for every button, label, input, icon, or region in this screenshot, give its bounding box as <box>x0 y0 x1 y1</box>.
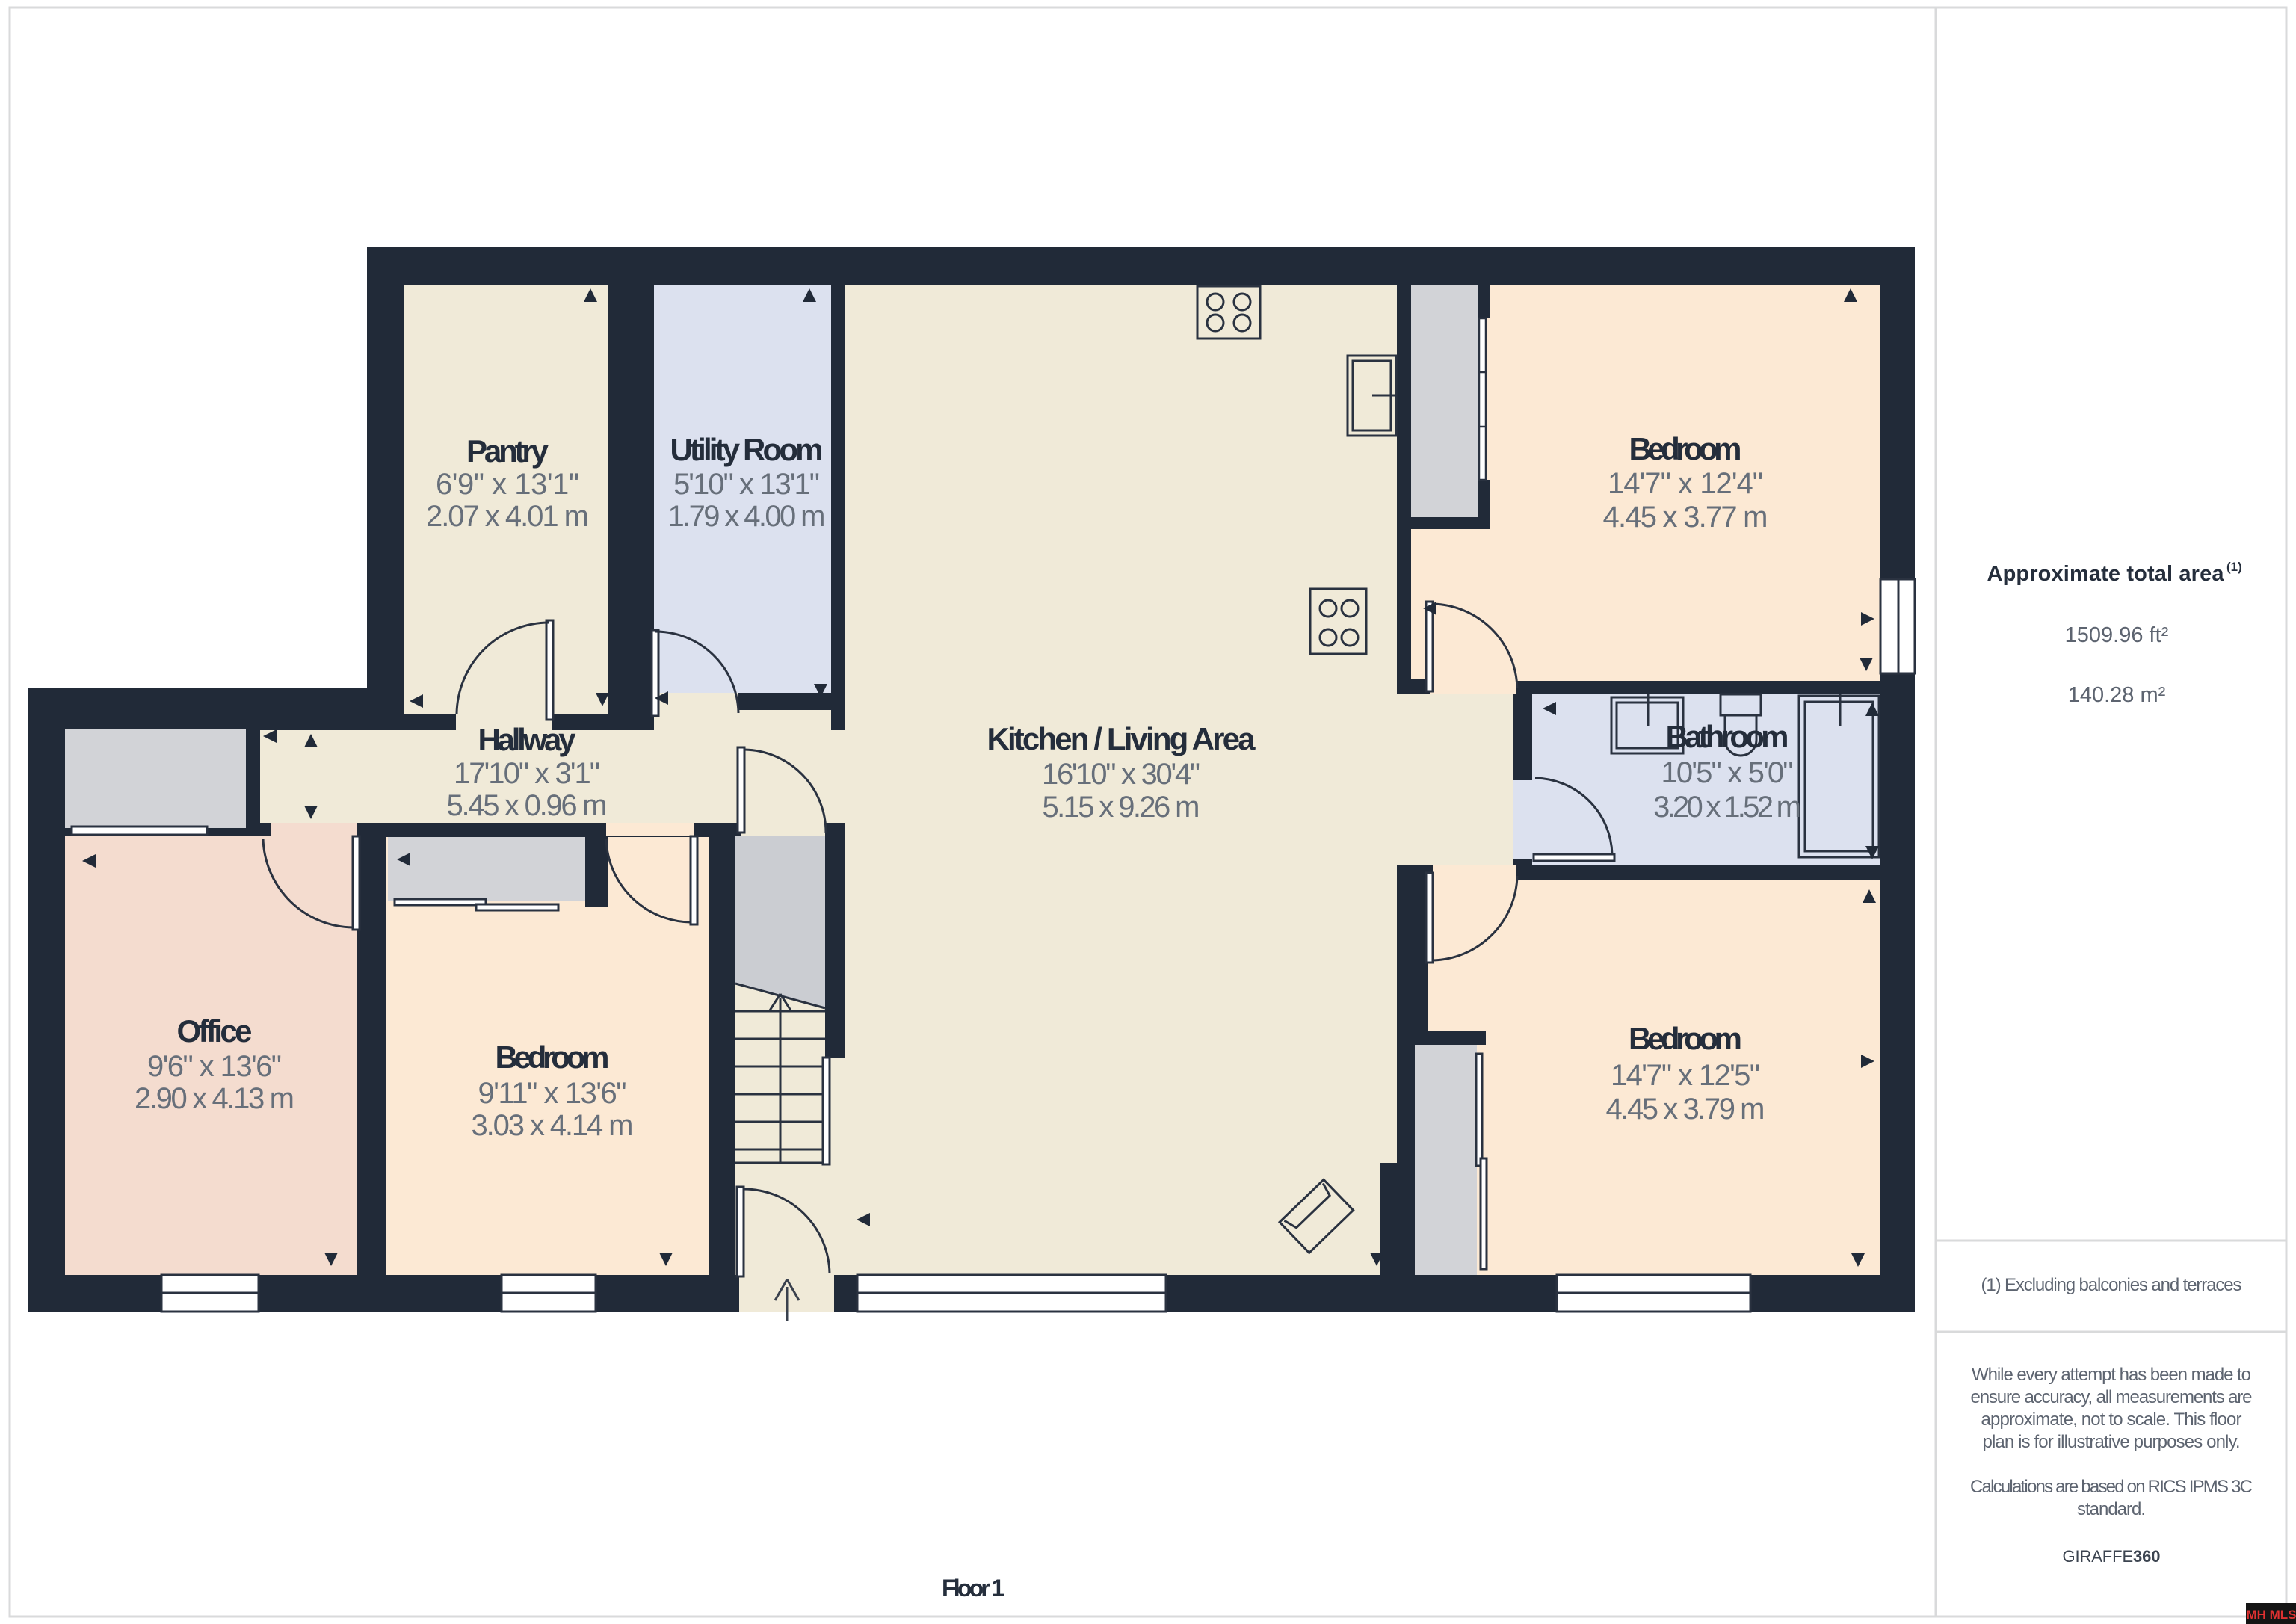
svg-text:14'7" x 12'4": 14'7" x 12'4" <box>1608 467 1763 500</box>
svg-text:14'7" x 12'5": 14'7" x 12'5" <box>1611 1059 1760 1092</box>
svg-text:Bathroom: Bathroom <box>1666 719 1789 754</box>
svg-text:Hallway: Hallway <box>478 722 577 757</box>
svg-text:standard.: standard. <box>2077 1499 2146 1519</box>
svg-text:Floor 1: Floor 1 <box>942 1575 1004 1602</box>
svg-text:9'6" x 13'6": 9'6" x 13'6" <box>147 1050 282 1083</box>
svg-text:1.79 x 4.00 m: 1.79 x 4.00 m <box>668 500 826 533</box>
svg-text:MH MLS: MH MLS <box>2246 1608 2296 1622</box>
svg-text:3.20 x 1.52 m: 3.20 x 1.52 m <box>1653 791 1801 824</box>
svg-text:5.15 x 9.26 m: 5.15 x 9.26 m <box>1043 791 1200 824</box>
svg-text:5'10" x 13'1": 5'10" x 13'1" <box>673 468 820 501</box>
svg-text:Office: Office <box>177 1013 253 1049</box>
svg-text:4.45 x 3.79 m: 4.45 x 3.79 m <box>1606 1093 1765 1126</box>
svg-text:4.45 x 3.77 m: 4.45 x 3.77 m <box>1603 501 1768 534</box>
svg-text:Kitchen / Living Area: Kitchen / Living Area <box>987 721 1256 756</box>
svg-text:plan is for illustrative purpo: plan is for illustrative purposes only. <box>1983 1432 2241 1452</box>
svg-text:approximate, not to scale. Thi: approximate, not to scale. This floor <box>1981 1410 2242 1430</box>
svg-text:3.03 x 4.14 m: 3.03 x 4.14 m <box>472 1109 634 1142</box>
svg-text:(1): (1) <box>2226 560 2242 574</box>
svg-text:Bedroom: Bedroom <box>1629 1021 1742 1056</box>
svg-text:9'11" x 13'6": 9'11" x 13'6" <box>478 1077 627 1110</box>
svg-text:Bedroom: Bedroom <box>496 1040 610 1075</box>
svg-text:Calculations are based on RICS: Calculations are based on RICS IPMS 3C <box>1970 1477 2253 1497</box>
svg-text:140.28 m²: 140.28 m² <box>2068 683 2166 707</box>
svg-text:10'5" x 5'0": 10'5" x 5'0" <box>1661 756 1794 789</box>
svg-text:Pantry: Pantry <box>466 433 549 469</box>
svg-text:Utility Room: Utility Room <box>670 432 824 467</box>
svg-text:ensure accuracy, all measureme: ensure accuracy, all measurements are <box>1971 1387 2253 1407</box>
svg-text:Approximate total area: Approximate total area <box>1987 562 2225 586</box>
svg-text:6'9" x 13'1": 6'9" x 13'1" <box>436 468 579 501</box>
svg-text:5.45 x 0.96 m: 5.45 x 0.96 m <box>447 789 608 822</box>
svg-text:2.90 x 4.13 m: 2.90 x 4.13 m <box>135 1082 294 1115</box>
svg-text:17'10" x 3'1": 17'10" x 3'1" <box>454 757 600 790</box>
svg-text:While every attempt has been m: While every attempt has been made to <box>1972 1365 2251 1385</box>
svg-text:2.07 x 4.01 m: 2.07 x 4.01 m <box>426 500 589 533</box>
svg-text:1509.96 ft²: 1509.96 ft² <box>2065 623 2169 647</box>
svg-text:(1) Excluding balconies and te: (1) Excluding balconies and terraces <box>1981 1275 2242 1295</box>
svg-text:GIRAFFE360: GIRAFFE360 <box>2063 1547 2161 1566</box>
svg-text:Bedroom: Bedroom <box>1629 431 1742 466</box>
svg-text:16'10" x 30'4": 16'10" x 30'4" <box>1042 758 1200 791</box>
